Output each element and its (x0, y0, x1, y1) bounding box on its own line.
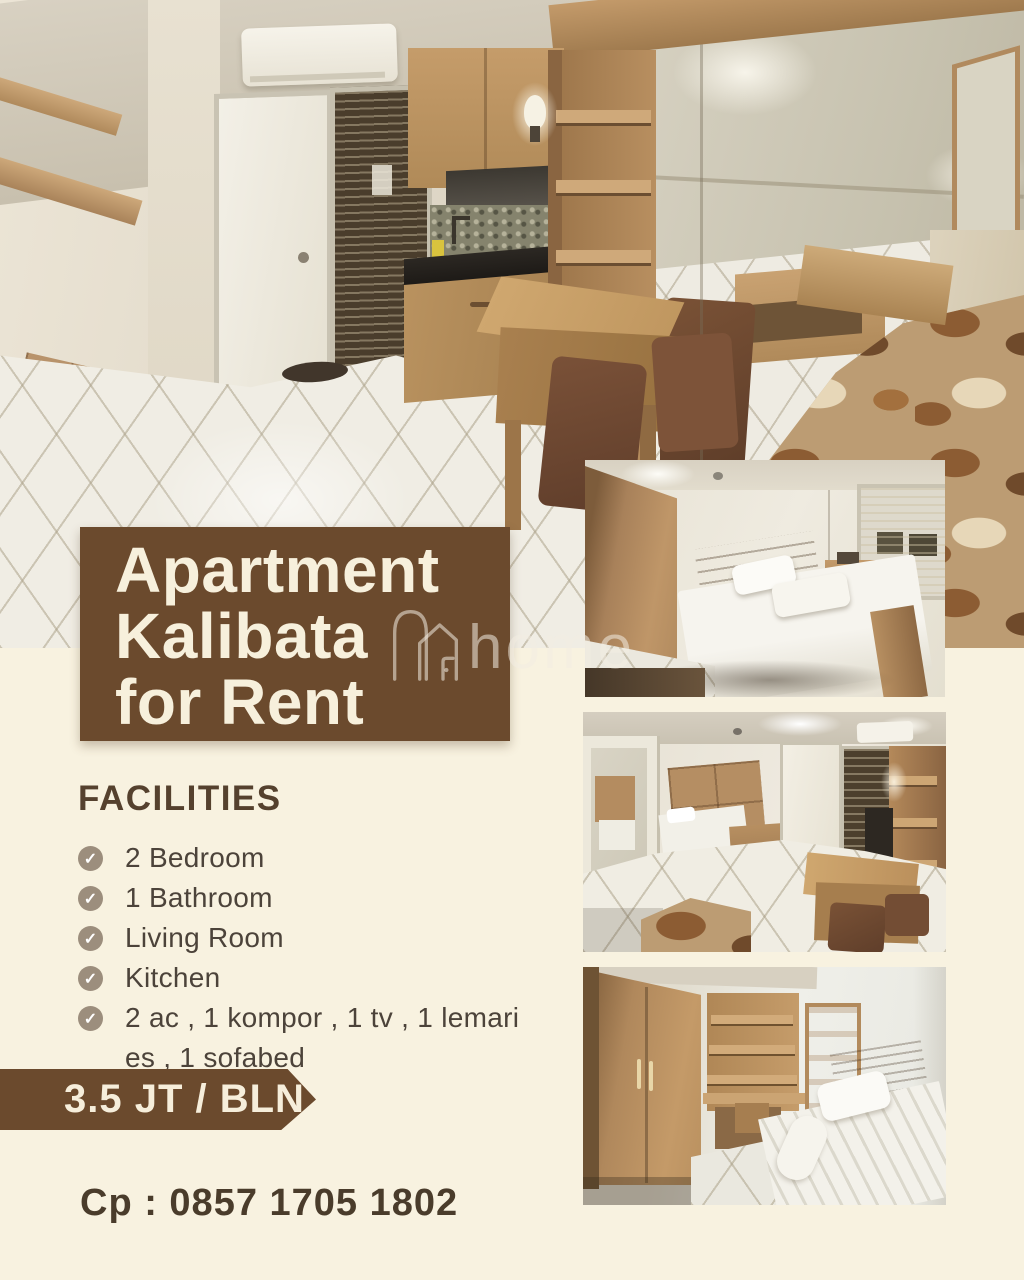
facility-label: 2 Bedroom (125, 838, 265, 878)
facility-label: Kitchen (125, 958, 221, 998)
contact-line: Cp : 0857 1705 1802 (80, 1182, 458, 1225)
smoke-detector (713, 472, 723, 480)
facility-item: ✓ Kitchen (78, 958, 519, 998)
check-icon: ✓ (78, 966, 103, 991)
title-line-2: Kalibata (80, 603, 510, 669)
stool (827, 902, 886, 952)
title-line-3: for Rent (80, 669, 510, 735)
title-line-1: Apartment (80, 537, 510, 603)
ac-unit (857, 721, 914, 743)
check-icon: ✓ (78, 886, 103, 911)
wardrobe (583, 969, 701, 1185)
facility-label: 1 Bathroom (125, 878, 273, 918)
photo-bedroom-main (585, 460, 945, 697)
stool (651, 332, 739, 452)
rental-flyer: Apartment Kalibata for Rent home FACILIT… (0, 0, 1024, 1280)
check-icon: ✓ (78, 926, 103, 951)
door (214, 90, 332, 400)
facility-item: ✓ Living Room (78, 918, 519, 958)
door-handle (298, 252, 309, 263)
facility-label: Living Room (125, 918, 284, 958)
facility-item: ✓ 2 ac , 1 kompor , 1 tv , 1 lemari es ,… (78, 998, 519, 1078)
smoke-detector (733, 728, 742, 735)
facility-item: ✓ 1 Bathroom (78, 878, 519, 918)
price-banner: 3.5 JT / BLN (0, 1069, 316, 1130)
check-icon: ✓ (78, 846, 103, 871)
title-banner: Apartment Kalibata for Rent (80, 527, 510, 741)
facilities-heading: FACILITIES (78, 779, 282, 819)
wardrobe-handle (637, 1059, 641, 1089)
facility-item: ✓ 2 Bedroom (78, 838, 519, 878)
wardrobe-handle (649, 1061, 653, 1091)
photo-bedroom-second (583, 967, 946, 1205)
photo-living-area (583, 712, 946, 952)
stool (885, 894, 929, 936)
facilities-list: ✓ 2 Bedroom ✓ 1 Bathroom ✓ Living Room ✓… (78, 838, 519, 1078)
door (780, 742, 842, 854)
check-icon: ✓ (78, 1006, 103, 1031)
facility-label: 2 ac , 1 kompor , 1 tv , 1 lemari es , 1… (125, 998, 519, 1078)
wall-lamp (524, 95, 546, 129)
price-label: 3.5 JT / BLN (64, 1077, 305, 1122)
